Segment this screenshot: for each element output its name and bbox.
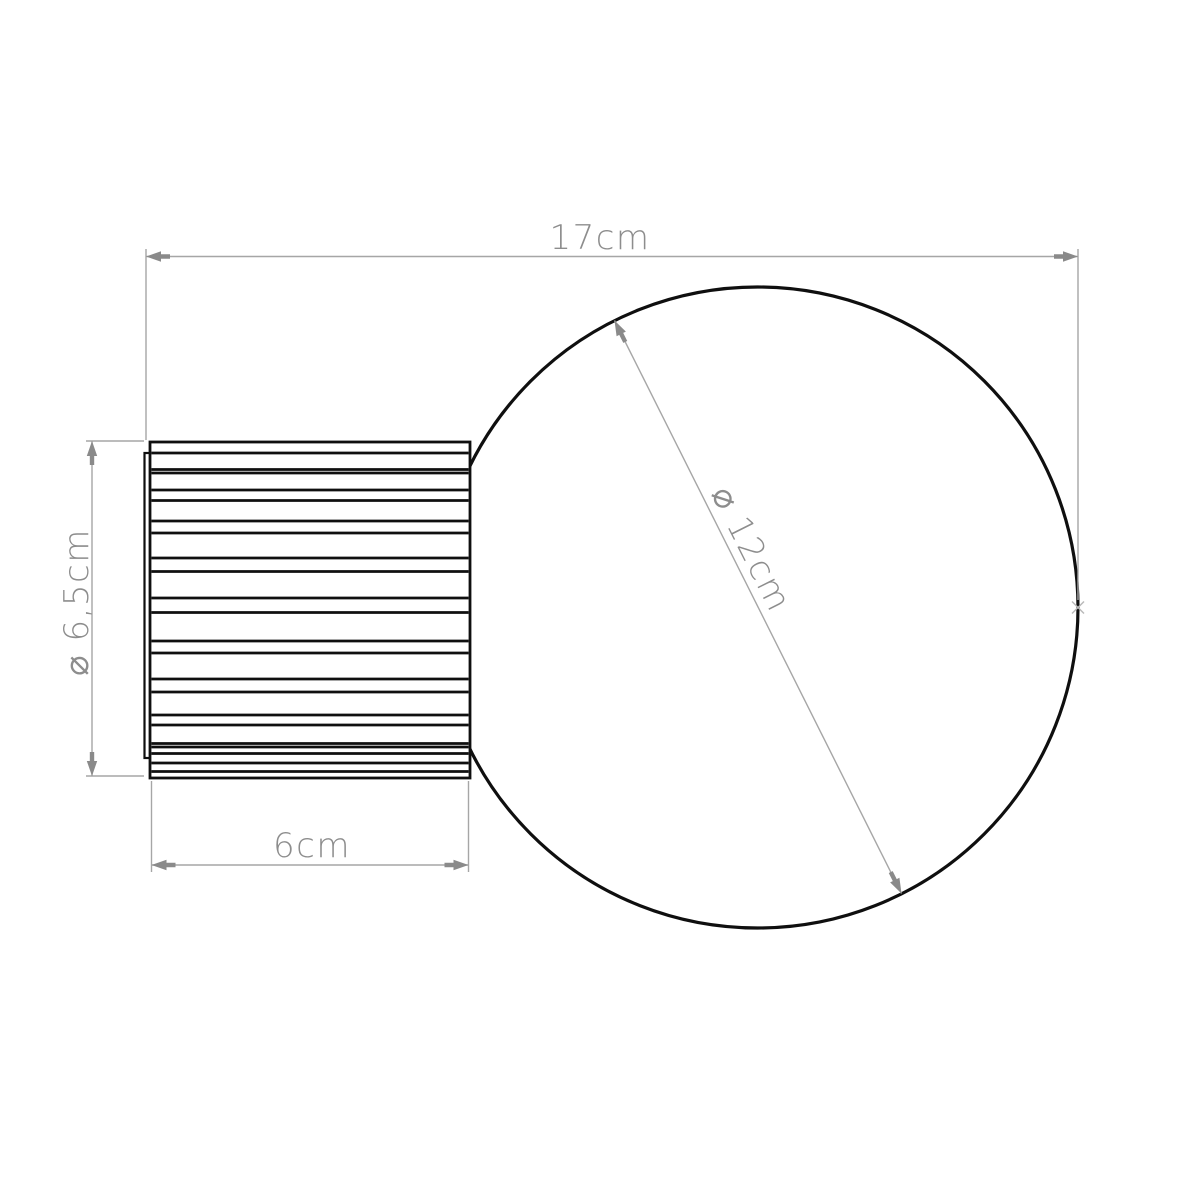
body-diameter-label: ⌀ 6,5cm [57,528,97,676]
total-width-label: 17cm [549,218,650,258]
dimension-globe-diameter: ⌀ 12cm [610,318,906,896]
body-ribs [152,453,469,772]
body-depth-label: 6cm [273,826,351,866]
arrowhead-left-icon [146,251,170,261]
lamp-technical-drawing: 17cm ⌀ 6,5cm 6cm ⌀ 12cm [0,0,1200,1200]
dimension-body-depth: 6cm [152,781,469,872]
arrowhead-up-icon [87,441,97,465]
drawing-canvas: 17cm ⌀ 6,5cm 6cm ⌀ 12cm [0,0,1200,1200]
arrowhead-left-icon [152,860,176,870]
arrowhead-right-icon [445,860,469,870]
dimension-body-diameter: ⌀ 6,5cm [57,441,144,776]
arrowhead-down-icon [87,752,97,776]
globe-diameter-label: ⌀ 12cm [703,480,799,619]
arrowhead-right-icon [1054,251,1078,261]
body-outline [150,442,470,778]
